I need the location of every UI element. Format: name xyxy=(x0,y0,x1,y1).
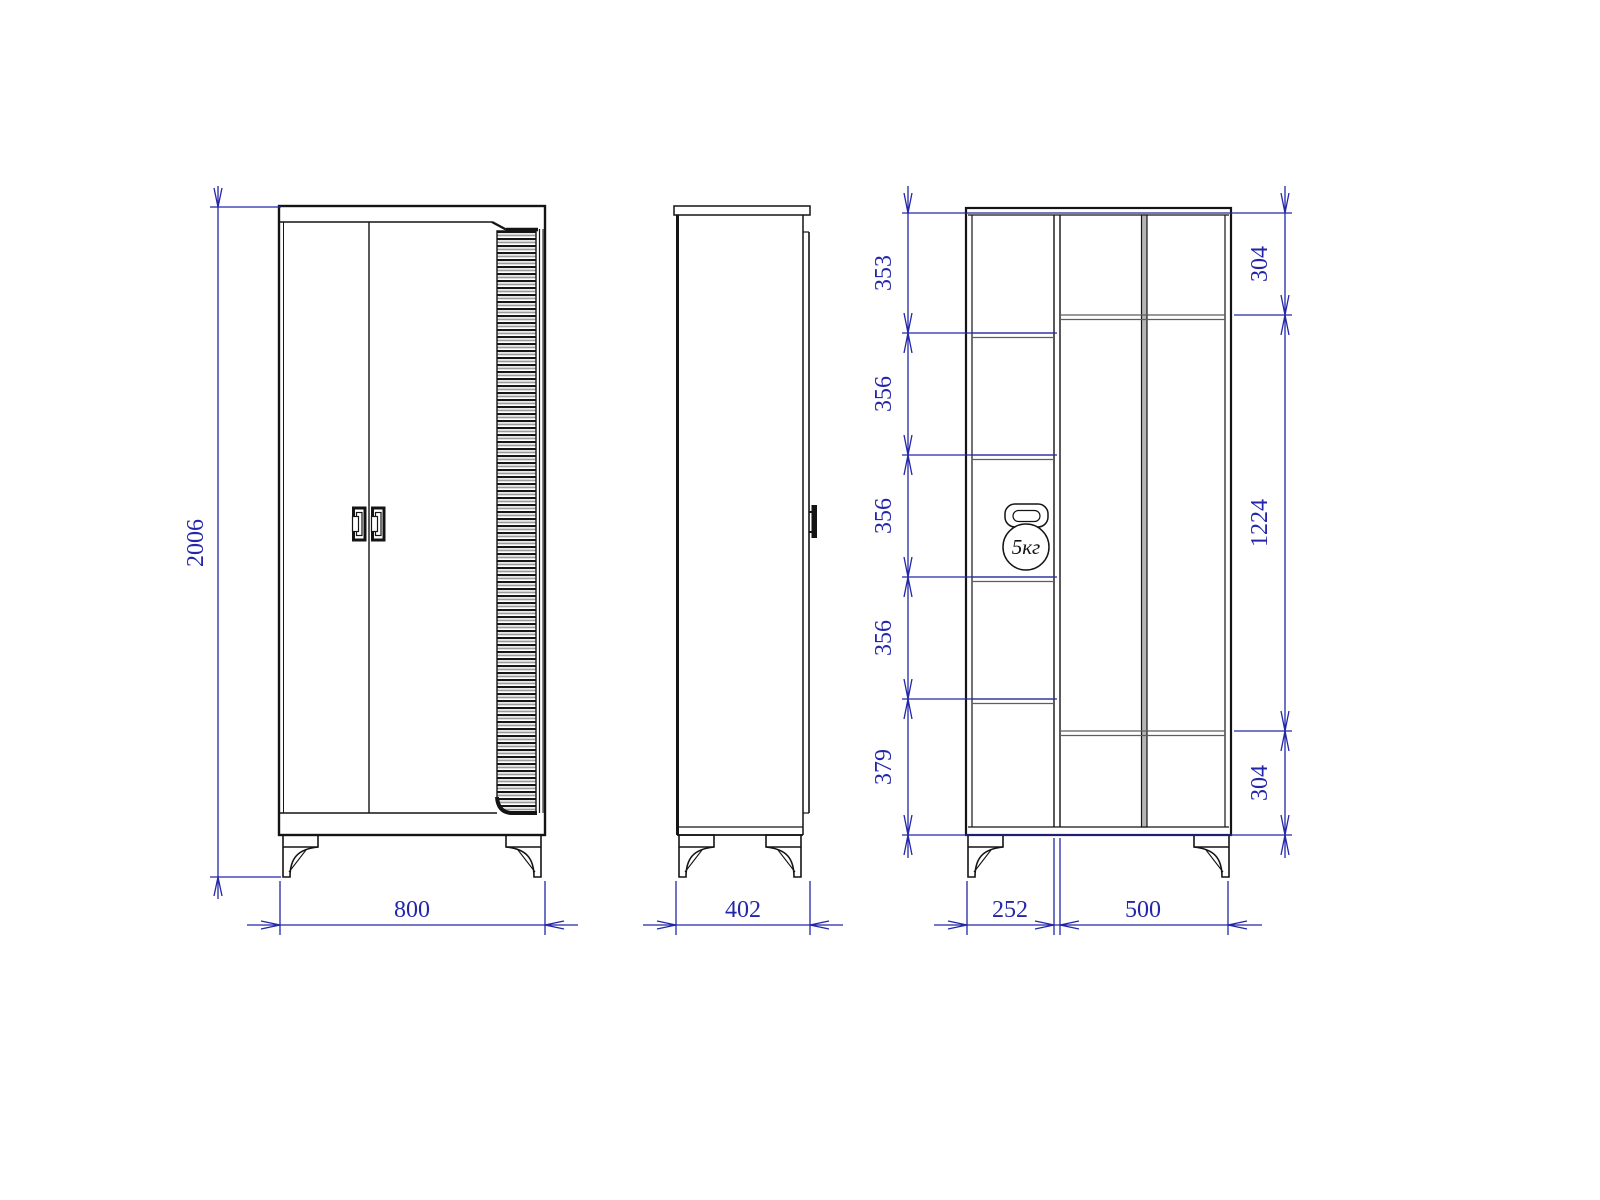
dim-left-chain xyxy=(902,186,1292,858)
label-seg-304-top: 304 xyxy=(1247,246,1273,282)
fluted-panel xyxy=(497,231,536,812)
door-handle-right xyxy=(372,508,385,540)
label-width-800: 800 xyxy=(394,897,430,923)
label-seg-304-bottom: 304 xyxy=(1247,765,1273,801)
side-door-handle xyxy=(809,505,817,538)
label-seg-353: 353 xyxy=(871,255,897,291)
dimensions xyxy=(210,186,1292,935)
label-seg-1224: 1224 xyxy=(1247,499,1273,547)
dim-height-2006 xyxy=(210,186,281,899)
front-leg-right xyxy=(506,835,541,877)
interior-view: 5кг xyxy=(966,208,1231,877)
front-view xyxy=(279,206,545,877)
label-depth-402: 402 xyxy=(725,897,761,923)
interior-leg-right xyxy=(1194,835,1229,877)
label-seg-356a: 356 xyxy=(871,376,897,412)
door-handle-left xyxy=(353,508,366,540)
side-top-panel xyxy=(674,206,810,215)
max-load-label: 5кг xyxy=(1012,535,1041,559)
interior-leg-left xyxy=(968,835,1003,877)
technical-drawing-page: 5кг xyxy=(0,0,1600,1200)
front-leg-left xyxy=(283,835,318,877)
label-seg-356c: 356 xyxy=(871,620,897,656)
label-bottom-500: 500 xyxy=(1125,897,1161,923)
side-leg-right xyxy=(766,835,801,877)
wardrobe-drawing: 5кг xyxy=(0,0,1600,1200)
dimension-labels: 2006 800 402 252 500 353 356 356 356 379… xyxy=(183,246,1273,923)
label-seg-356b: 356 xyxy=(871,498,897,534)
label-bottom-252: 252 xyxy=(992,897,1028,923)
label-seg-379: 379 xyxy=(871,749,897,785)
side-leg-left xyxy=(679,835,714,877)
max-load-kettlebell-icon: 5кг xyxy=(1003,504,1049,570)
label-height-2006: 2006 xyxy=(183,519,209,567)
side-view xyxy=(674,206,817,877)
